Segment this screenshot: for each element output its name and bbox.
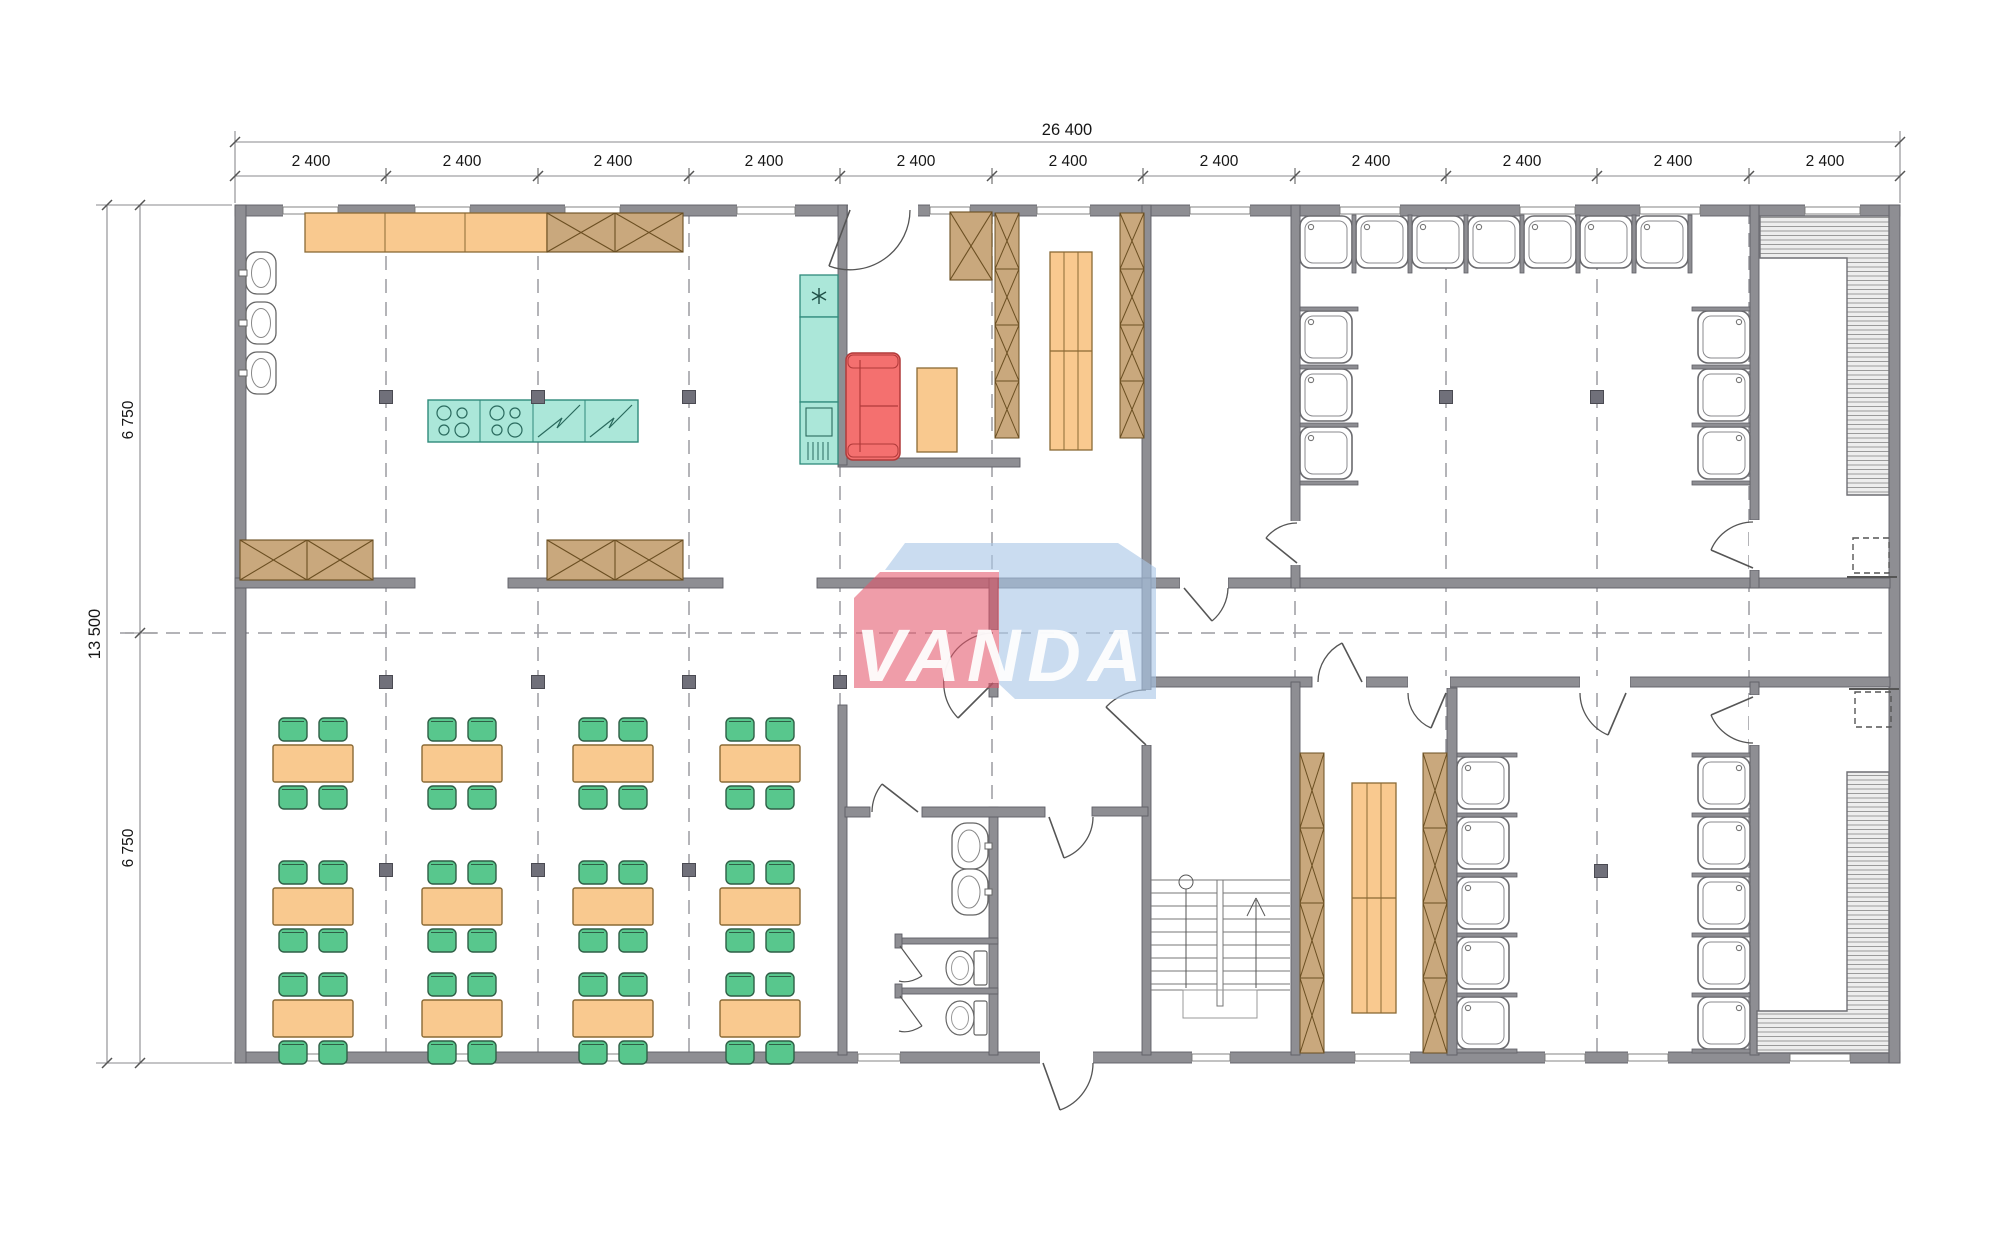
sauna-bench [1760,216,1889,495]
wardrobe-strip [1300,753,1324,1053]
tall-fridge-unit [800,275,838,464]
door [1711,522,1753,568]
exterior-wall-left [235,205,246,1063]
wardrobe-strip [1423,753,1447,1053]
dining-set [573,861,653,952]
dining-set [422,861,502,952]
floor-plan-page: VANDA 26 [0,0,2000,1235]
dining-set [273,973,353,1064]
dimension-bay: 2 400 [443,153,482,170]
shelving-unit [1050,252,1092,450]
bathroom-sink [952,823,992,869]
dining-set [720,861,800,952]
dimension-total-height: 13 500 [86,609,104,659]
bathroom-sink [952,869,992,915]
dining-set [573,973,653,1064]
entrance-door [1043,1063,1093,1110]
toilet-room [899,823,992,1035]
door [872,784,918,812]
staircase [1151,875,1290,1018]
dimension-bay: 2 400 [897,153,936,170]
kitchen-island [428,400,638,442]
dimension-lower-half: 6 750 [120,828,137,867]
dimension-bay: 2 400 [1049,153,1088,170]
dining-set [273,718,353,809]
stair-direction-arrow [1247,898,1265,988]
crossed-cabinet [547,213,683,252]
crossed-cabinet [240,540,683,580]
wall-sinks [239,252,276,394]
dining-set [422,973,502,1064]
dining-set [573,718,653,809]
door [1580,693,1626,735]
door [1711,697,1753,743]
sauna-top [1760,216,1897,577]
dining-set [720,973,800,1064]
dining-set [720,718,800,809]
watermark: VANDA [854,543,1156,699]
crossed-cabinet [950,212,992,280]
lounge [846,212,992,460]
dimension-bay: 2 400 [1806,153,1845,170]
wardrobe-strip [995,213,1019,438]
dimension-bay: 2 400 [1352,153,1391,170]
dimension-bay: 2 400 [594,153,633,170]
shower-room-bottom [1457,753,1750,1053]
kitchen-counter [305,213,547,252]
dining-area [273,718,800,1064]
dining-set [422,718,502,809]
sauna-bottom [1757,689,1899,1053]
dimension-bay: 2 400 [1503,153,1542,170]
door [1049,817,1093,858]
dimension-total-width: 26 400 [1042,121,1092,139]
toilet [946,1001,987,1035]
shelving-unit [1352,783,1396,1013]
toilet [946,951,987,985]
wardrobe-strip [1120,213,1144,438]
watermark-text: VANDA [856,614,1149,697]
sauna-bench [1757,772,1889,1053]
shower-room-top [1300,215,1750,485]
sofa [846,353,900,460]
door [1184,588,1228,621]
exterior-wall-right [1889,205,1900,1063]
coffee-table [917,368,957,452]
dimension-bay: 2 400 [1200,153,1239,170]
sauna-heater [1853,538,1889,573]
dining-set [273,861,353,952]
dimension-bay: 2 400 [292,153,331,170]
sauna-heater [1855,692,1891,727]
floor-plan-drawing: VANDA 26 [0,0,2000,1235]
dimension-bay: 2 400 [745,153,784,170]
door [1408,693,1446,728]
dimension-bay: 2 400 [1654,153,1693,170]
dimension-upper-half: 6 750 [120,400,137,439]
